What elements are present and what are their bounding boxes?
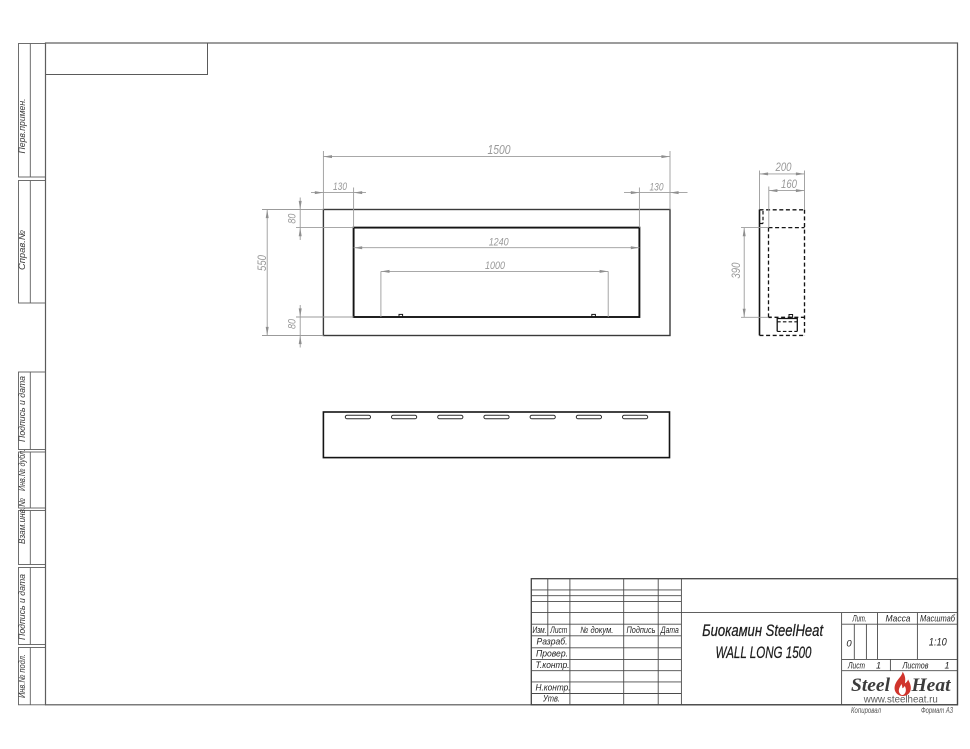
svg-text:№ докум.: № докум.	[580, 625, 613, 635]
svg-text:1: 1	[944, 660, 949, 670]
svg-text:Т.контр.: Т.контр.	[536, 660, 570, 670]
svg-text:Изм.: Изм.	[533, 625, 547, 635]
svg-text:1: 1	[876, 660, 881, 670]
svg-text:Копировал: Копировал	[851, 706, 881, 715]
svg-text:Взам.инв.№: Взам.инв.№	[17, 498, 27, 544]
svg-text:Инв.№ подл.: Инв.№ подл.	[17, 654, 27, 698]
svg-text:Steel: Steel	[851, 675, 891, 696]
svg-text:Масса: Масса	[886, 614, 911, 624]
svg-text:1500: 1500	[488, 142, 512, 157]
svg-text:550: 550	[257, 254, 269, 271]
svg-text:390: 390	[731, 262, 743, 279]
svg-text:Подпись: Подпись	[627, 625, 656, 635]
svg-text:WALL LONG 1500: WALL LONG 1500	[716, 644, 813, 662]
svg-text:www.steelheat.ru: www.steelheat.ru	[863, 694, 938, 705]
svg-text:1:10: 1:10	[929, 636, 948, 648]
svg-text:Биокамин SteelHeat: Биокамин SteelHeat	[702, 622, 824, 640]
svg-text:1240: 1240	[489, 236, 510, 248]
svg-text:Н.контр.: Н.контр.	[536, 683, 571, 693]
svg-text:0: 0	[846, 638, 852, 649]
svg-text:Инв.№ дубл.: Инв.№ дубл.	[17, 449, 27, 491]
svg-text:Перв.примен.: Перв.примен.	[17, 99, 27, 154]
svg-text:Разраб.: Разраб.	[537, 637, 568, 647]
svg-text:130: 130	[650, 182, 665, 194]
svg-text:Лит.: Лит.	[852, 614, 867, 624]
svg-text:Формат А3: Формат А3	[921, 706, 953, 715]
svg-text:Листов: Листов	[902, 660, 929, 670]
svg-text:160: 160	[781, 179, 798, 191]
svg-text:Лист: Лист	[847, 660, 865, 670]
svg-text:1000: 1000	[485, 260, 506, 272]
svg-text:Провер.: Провер.	[536, 648, 568, 658]
svg-text:Справ.№: Справ.№	[17, 230, 27, 270]
svg-text:Масштаб: Масштаб	[920, 614, 956, 624]
svg-text:Утв.: Утв.	[542, 694, 560, 704]
svg-text:Лист: Лист	[550, 625, 568, 635]
svg-text:Подпись и дата: Подпись и дата	[17, 574, 27, 640]
svg-text:80: 80	[287, 213, 299, 224]
svg-text:80: 80	[287, 318, 299, 329]
svg-text:130: 130	[333, 181, 348, 193]
svg-text:Подпись и дата: Подпись и дата	[17, 376, 27, 442]
svg-text:200: 200	[775, 162, 792, 174]
svg-text:Heat: Heat	[910, 675, 951, 696]
svg-text:Дата: Дата	[660, 625, 679, 635]
